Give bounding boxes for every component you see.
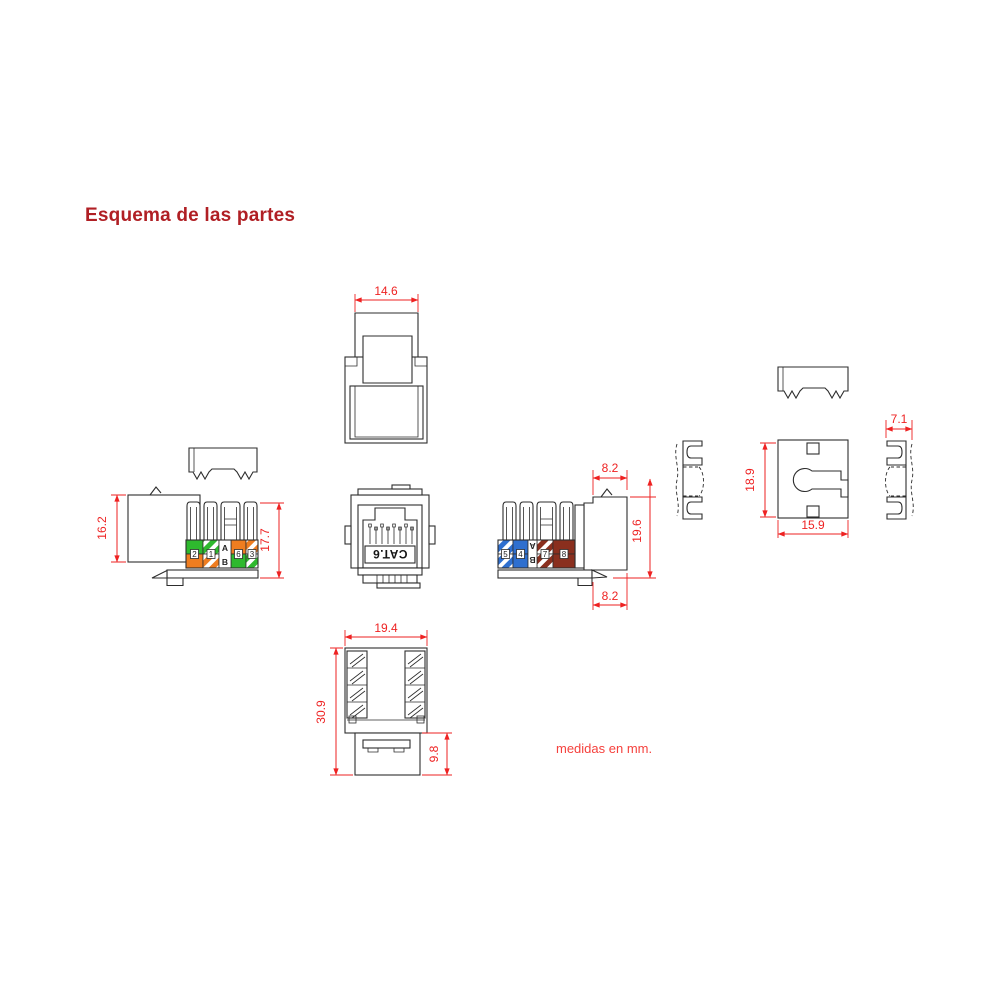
side-a-base [167,570,258,578]
dim-label-19-6: 19.6 [630,519,644,543]
dust-cap-profile-right [886,441,914,519]
dim-label-14-6: 14.6 [374,284,398,298]
side-a-wiring-label: A B 2 1 6 3 [186,540,258,568]
pin-number: 1 [209,550,214,559]
front-bottom-bar [358,568,422,575]
pin-number: 8 [562,550,567,559]
cat6-label: CAT.6 [373,547,408,561]
side-a-idc-towers [187,502,257,540]
side-b-idc-towers [503,502,573,540]
dim-side-a-body-height: 16.2 [95,495,126,562]
wiring-row-b-label: B [529,555,535,565]
pin-number: 3 [250,550,255,559]
rear-inner-tab [363,336,412,383]
dust-cap-side-a [189,448,257,479]
dim-cap-width: 15.9 [778,518,848,538]
view-top-rear: 14.6 [345,284,427,443]
front-left-wing [345,526,351,544]
wiring-row-a-label: A [222,543,228,553]
dim-side-a-total-height: 17.7 [258,503,284,578]
dim-side-b-top-width: 8.2 [593,461,627,495]
pin-number: 2 [192,550,197,559]
dim-label-17-7: 17.7 [258,528,272,552]
side-b-wiring-label: A B 5 4 7 8 [498,540,575,568]
units-note: medidas en mm. [556,741,652,756]
dust-cap-front-view [778,440,848,518]
side-b-connector [575,505,584,568]
dim-label-30-9: 30.9 [314,700,328,724]
dim-rear-width: 14.6 [355,284,418,312]
dim-label-9-8: 9.8 [427,745,441,762]
side-b-latch-spike [601,489,612,497]
view-side-b: A B 5 4 7 8 8.2 19.6 [498,461,656,610]
dim-cap-depth: 7.1 [886,412,912,440]
dust-cap-profile-left [676,441,704,519]
dust-cap-top-view [778,367,848,398]
dim-bottom-base-height: 9.8 [422,733,452,775]
parts-diagram: 14.6 [0,0,1000,1000]
wiring-row-b-label: B [222,557,228,567]
side-a-latch-spike [150,487,161,495]
dim-label-8-2-bottom: 8.2 [602,589,619,603]
dim-side-b-bottom-width: 8.2 [593,573,627,610]
view-bottom: 19.4 30.9 9.8 [314,621,452,775]
dim-label-19-4: 19.4 [374,621,398,635]
view-side-a: A B 2 1 6 3 16.2 17.7 [95,448,284,586]
dim-cap-height: 18.9 [743,443,776,517]
dim-label-16-2: 16.2 [95,516,109,540]
front-top-bar [358,489,422,495]
view-front: CAT.6 [345,485,435,588]
pin-number: 6 [236,550,241,559]
dim-bottom-width: 19.4 [345,621,427,646]
dim-label-15-9: 15.9 [801,518,825,532]
dim-label-8-2-top: 8.2 [602,461,619,475]
front-right-wing [429,526,435,544]
pin-number: 7 [543,550,548,559]
front-foot [377,583,420,588]
front-top-tab [392,485,410,489]
side-b-base [498,570,592,578]
front-bottom-tab [363,575,417,583]
bottom-lower-body [355,733,420,775]
side-b-body [584,497,627,570]
dust-cap-group: 7.1 18.9 15.9 [676,367,914,538]
wiring-row-a-label: A [529,541,535,551]
dim-label-7-1: 7.1 [891,412,908,426]
dim-label-18-9: 18.9 [743,468,757,492]
pin-number: 5 [503,550,508,559]
pin-number: 4 [518,550,523,559]
